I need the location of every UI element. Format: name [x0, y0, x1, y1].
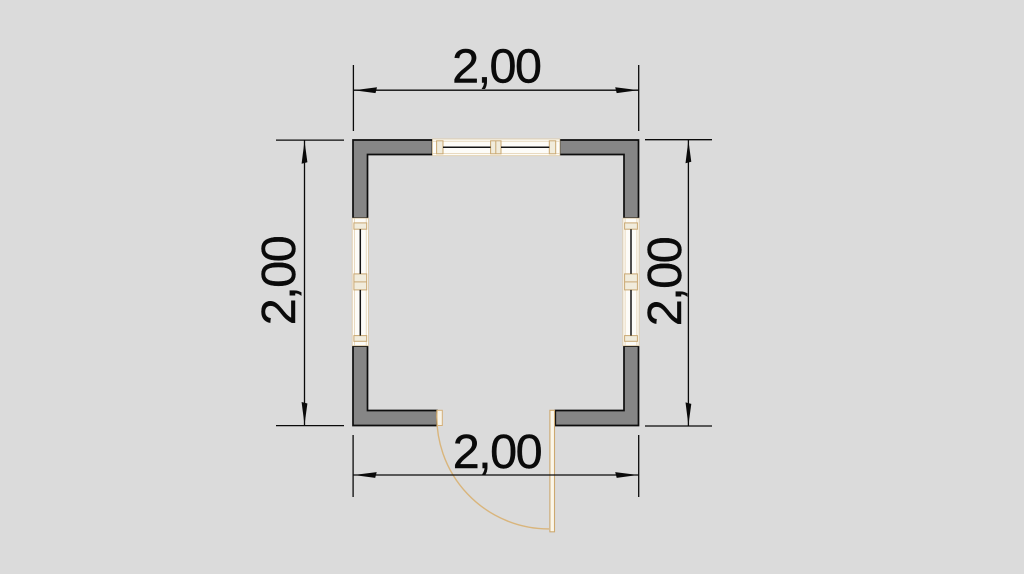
svg-text:2,00: 2,00	[638, 237, 692, 326]
svg-text:2,00: 2,00	[453, 425, 542, 479]
svg-text:2,00: 2,00	[452, 40, 541, 94]
svg-text:2,00: 2,00	[252, 236, 306, 325]
